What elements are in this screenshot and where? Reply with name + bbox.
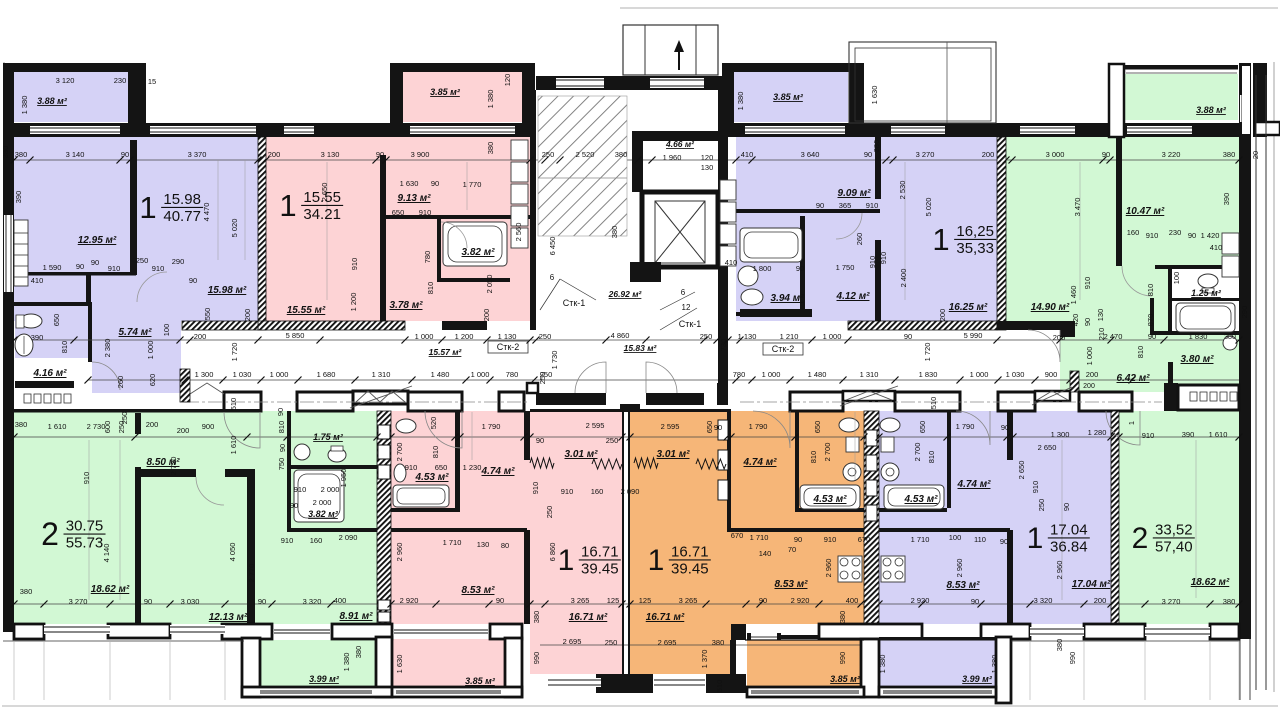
svg-text:650: 650: [918, 421, 927, 434]
svg-text:90: 90: [376, 150, 384, 159]
svg-text:1 830: 1 830: [919, 370, 938, 379]
svg-text:910: 910: [82, 472, 91, 485]
svg-text:410: 410: [31, 276, 44, 285]
svg-text:1: 1: [1127, 421, 1136, 425]
svg-text:230: 230: [1169, 228, 1182, 237]
svg-text:1 610: 1 610: [229, 436, 238, 455]
svg-text:1 000: 1 000: [270, 370, 289, 379]
svg-text:870: 870: [1146, 314, 1155, 327]
svg-text:3.85 м²: 3.85 м²: [430, 87, 461, 97]
svg-text:1 380: 1 380: [486, 90, 495, 109]
svg-text:120: 120: [503, 74, 512, 87]
svg-text:2 400: 2 400: [899, 269, 908, 288]
svg-text:910: 910: [152, 264, 165, 273]
svg-text:35,33: 35,33: [956, 240, 994, 257]
svg-text:380: 380: [15, 420, 28, 429]
svg-text:910: 910: [419, 208, 432, 217]
svg-text:3 265: 3 265: [571, 596, 590, 605]
svg-text:3.88 м²: 3.88 м²: [37, 96, 68, 106]
svg-text:250: 250: [1037, 499, 1046, 512]
svg-text:1 200: 1 200: [455, 332, 474, 341]
svg-text:9.13 м²: 9.13 м²: [398, 193, 432, 204]
svg-text:100: 100: [162, 324, 171, 337]
svg-text:1.75 м²: 1.75 м²: [313, 432, 344, 442]
svg-text:1 480: 1 480: [808, 370, 827, 379]
svg-text:15.55 м²: 15.55 м²: [287, 305, 326, 316]
svg-text:400: 400: [334, 596, 347, 605]
svg-text:12.95 м²: 12.95 м²: [78, 235, 117, 246]
svg-text:16.25 м²: 16.25 м²: [949, 302, 988, 313]
svg-text:90: 90: [904, 332, 912, 341]
svg-text:90: 90: [91, 258, 99, 267]
svg-text:600: 600: [103, 421, 112, 434]
svg-text:780: 780: [423, 251, 432, 264]
svg-text:910: 910: [561, 487, 574, 496]
svg-text:1 000: 1 000: [471, 370, 490, 379]
svg-text:12.13 м²: 12.13 м²: [209, 612, 248, 623]
svg-text:1 000: 1 000: [762, 370, 781, 379]
svg-text:40.77: 40.77: [163, 208, 201, 225]
svg-text:2 380: 2 380: [103, 339, 112, 358]
svg-text:15.83 м²: 15.83 м²: [624, 343, 658, 353]
svg-text:910: 910: [405, 463, 418, 472]
svg-text:520: 520: [429, 417, 438, 430]
svg-text:4.66 м²: 4.66 м²: [665, 139, 695, 149]
svg-text:250: 250: [136, 256, 149, 265]
svg-text:1 370: 1 370: [700, 650, 709, 669]
svg-text:10.47 м²: 10.47 м²: [1126, 206, 1165, 217]
svg-text:90: 90: [796, 264, 804, 273]
svg-text:1 710: 1 710: [750, 533, 769, 542]
svg-text:250: 250: [606, 436, 619, 445]
svg-text:90: 90: [76, 262, 84, 271]
svg-text:2 700: 2 700: [913, 443, 922, 462]
svg-text:90: 90: [971, 597, 979, 606]
svg-text:3.01 м²: 3.01 м²: [565, 449, 599, 460]
svg-text:1 790: 1 790: [749, 422, 768, 431]
svg-text:1: 1: [139, 190, 156, 225]
svg-text:16.71 м²: 16.71 м²: [646, 612, 685, 623]
svg-text:1 000: 1 000: [1085, 347, 1094, 366]
svg-text:16.71: 16.71: [671, 543, 709, 560]
svg-text:8.53 м²: 8.53 м²: [947, 580, 981, 591]
svg-text:5 020: 5 020: [230, 219, 239, 238]
svg-text:2 960: 2 960: [395, 543, 404, 562]
svg-text:260: 260: [855, 233, 864, 246]
svg-text:510: 510: [229, 398, 238, 411]
svg-text:1 380: 1 380: [878, 655, 887, 674]
svg-text:810: 810: [1146, 284, 1155, 297]
svg-text:2 650: 2 650: [1017, 461, 1026, 480]
svg-text:200: 200: [1086, 370, 1099, 379]
svg-text:380: 380: [838, 611, 847, 624]
svg-text:1 590: 1 590: [43, 263, 62, 272]
svg-text:260: 260: [116, 376, 125, 389]
svg-text:1 790: 1 790: [956, 422, 975, 431]
svg-text:510: 510: [715, 680, 724, 693]
svg-text:780: 780: [506, 370, 519, 379]
svg-text:650: 650: [52, 314, 61, 327]
svg-text:130: 130: [1096, 309, 1105, 322]
svg-text:1 030: 1 030: [233, 370, 252, 379]
svg-text:810: 810: [60, 341, 69, 354]
svg-text:90: 90: [794, 535, 802, 544]
svg-text:3.99 м²: 3.99 м²: [962, 674, 993, 684]
svg-text:4.74 м²: 4.74 м²: [957, 479, 992, 490]
svg-text:3.85 м²: 3.85 м²: [830, 674, 861, 684]
svg-text:6: 6: [550, 273, 555, 282]
svg-text:4 050: 4 050: [228, 543, 237, 562]
svg-text:1 610: 1 610: [1209, 430, 1228, 439]
svg-text:3 220: 3 220: [1162, 150, 1181, 159]
svg-text:620: 620: [148, 374, 157, 387]
svg-text:1 200: 1 200: [349, 293, 358, 312]
svg-text:2: 2: [1132, 522, 1149, 555]
svg-text:2 960: 2 960: [824, 559, 833, 578]
svg-text:910: 910: [294, 485, 307, 494]
svg-text:2 000: 2 000: [313, 498, 332, 507]
svg-text:380: 380: [1055, 639, 1064, 652]
svg-text:410: 410: [725, 258, 738, 267]
svg-text:2 595: 2 595: [661, 422, 680, 431]
svg-text:90: 90: [864, 150, 872, 159]
svg-text:90: 90: [816, 201, 824, 210]
svg-text:34.21: 34.21: [303, 206, 341, 223]
svg-text:1: 1: [279, 188, 296, 223]
svg-text:57,40: 57,40: [1155, 538, 1193, 555]
svg-text:365: 365: [839, 201, 852, 210]
svg-text:910: 910: [108, 264, 121, 273]
svg-text:100: 100: [949, 533, 962, 542]
svg-text:2 700: 2 700: [395, 443, 404, 462]
svg-text:250: 250: [700, 332, 713, 341]
svg-text:380: 380: [532, 611, 541, 624]
svg-text:1 300: 1 300: [1051, 430, 1070, 439]
svg-text:15.98: 15.98: [163, 191, 201, 208]
svg-text:200: 200: [268, 150, 281, 159]
svg-text:1: 1: [1027, 522, 1044, 555]
svg-text:380: 380: [610, 226, 619, 239]
svg-text:55.73: 55.73: [66, 535, 104, 552]
svg-text:2 960: 2 960: [955, 559, 964, 578]
svg-text:650: 650: [813, 421, 822, 434]
svg-text:3 120: 3 120: [56, 76, 75, 85]
svg-text:90: 90: [189, 276, 197, 285]
svg-text:90: 90: [276, 408, 285, 416]
svg-text:15: 15: [148, 77, 156, 86]
svg-text:90: 90: [714, 423, 722, 432]
svg-text:4.74 м²: 4.74 м²: [743, 457, 778, 468]
svg-text:1 630: 1 630: [870, 86, 879, 105]
svg-text:16.71 м²: 16.71 м²: [569, 612, 608, 623]
svg-text:6.42 м²: 6.42 м²: [1117, 373, 1151, 384]
svg-text:1 610: 1 610: [48, 422, 67, 431]
svg-text:1 000: 1 000: [823, 332, 842, 341]
svg-text:3 370: 3 370: [188, 150, 207, 159]
svg-text:230: 230: [114, 76, 127, 85]
svg-text:6 860: 6 860: [548, 543, 557, 562]
svg-text:4.53 м²: 4.53 м²: [904, 494, 939, 505]
svg-text:2 650: 2 650: [1038, 443, 1057, 452]
svg-text:Стк-1: Стк-1: [563, 298, 586, 308]
svg-text:80: 80: [501, 541, 509, 550]
svg-text:380: 380: [1223, 150, 1236, 159]
svg-text:18.62 м²: 18.62 м²: [1191, 577, 1230, 588]
svg-text:200: 200: [194, 332, 207, 341]
svg-text:650: 650: [435, 463, 448, 472]
svg-text:2 050: 2 050: [485, 275, 494, 294]
svg-text:3.82 м²: 3.82 м²: [308, 509, 339, 519]
svg-text:3.85 м²: 3.85 м²: [773, 92, 804, 102]
svg-text:1 460: 1 460: [1069, 286, 1078, 305]
svg-text:810: 810: [809, 451, 818, 464]
svg-text:2 920: 2 920: [791, 596, 810, 605]
svg-text:3 030: 3 030: [181, 597, 200, 606]
svg-text:130: 130: [477, 540, 490, 549]
svg-text:380: 380: [712, 638, 725, 647]
svg-text:16.71: 16.71: [581, 543, 619, 560]
svg-text:1 000: 1 000: [146, 341, 155, 360]
svg-text:810: 810: [431, 446, 440, 459]
svg-text:650: 650: [392, 208, 405, 217]
svg-text:250: 250: [545, 506, 554, 519]
svg-text:70: 70: [788, 545, 796, 554]
svg-text:1 380: 1 380: [990, 655, 999, 674]
svg-text:2 920: 2 920: [400, 596, 419, 605]
svg-text:1 210: 1 210: [780, 332, 799, 341]
svg-text:250: 250: [120, 412, 129, 425]
svg-text:390: 390: [1182, 430, 1195, 439]
svg-text:1 730: 1 730: [550, 351, 559, 370]
svg-text:1 480: 1 480: [431, 370, 450, 379]
svg-text:390: 390: [31, 333, 44, 342]
svg-text:3 270: 3 270: [69, 597, 88, 606]
svg-text:90: 90: [1001, 423, 1009, 432]
svg-text:2 470: 2 470: [1104, 332, 1123, 341]
svg-text:2 695: 2 695: [658, 638, 677, 647]
svg-text:390: 390: [1222, 193, 1231, 206]
svg-text:1.25 м²: 1.25 м²: [1191, 288, 1222, 298]
svg-text:Стк-2: Стк-2: [772, 344, 795, 354]
svg-text:1 130: 1 130: [498, 332, 517, 341]
svg-text:120: 120: [701, 153, 714, 162]
svg-text:16,25: 16,25: [956, 223, 994, 240]
svg-text:1 790: 1 790: [482, 422, 501, 431]
svg-text:650: 650: [705, 421, 714, 434]
svg-text:1: 1: [648, 544, 665, 577]
svg-text:1 310: 1 310: [372, 370, 391, 379]
svg-text:3 470: 3 470: [1073, 198, 1082, 217]
svg-text:90: 90: [278, 444, 287, 452]
svg-text:410: 410: [1210, 243, 1223, 252]
svg-text:990: 990: [532, 652, 541, 665]
svg-text:18.62 м²: 18.62 м²: [91, 584, 130, 595]
svg-text:810: 810: [1136, 346, 1145, 359]
svg-text:90: 90: [1000, 537, 1008, 546]
svg-text:420: 420: [1071, 314, 1080, 327]
svg-text:4.74 м²: 4.74 м²: [481, 466, 516, 477]
svg-text:3.80 м²: 3.80 м²: [1181, 354, 1215, 365]
svg-text:160: 160: [591, 487, 604, 496]
svg-text:1 710: 1 710: [911, 535, 930, 544]
svg-text:3 130: 3 130: [321, 150, 340, 159]
svg-text:810: 810: [426, 282, 435, 295]
svg-text:90: 90: [144, 597, 152, 606]
svg-text:380: 380: [872, 140, 881, 153]
svg-text:1 770: 1 770: [463, 180, 482, 189]
svg-text:2 560: 2 560: [514, 223, 523, 242]
svg-text:3 320: 3 320: [303, 597, 322, 606]
svg-text:380: 380: [486, 142, 495, 155]
svg-text:15.98 м²: 15.98 м²: [208, 285, 247, 296]
svg-text:90: 90: [258, 597, 266, 606]
svg-text:3 140: 3 140: [66, 150, 85, 159]
svg-text:15.57 м²: 15.57 м²: [429, 347, 463, 357]
svg-text:1 310: 1 310: [860, 370, 879, 379]
svg-text:1 280: 1 280: [1088, 428, 1107, 437]
svg-text:140: 140: [759, 549, 772, 558]
svg-text:3 320: 3 320: [1034, 596, 1053, 605]
svg-text:910: 910: [824, 535, 837, 544]
svg-text:2 000: 2 000: [321, 485, 340, 494]
svg-text:1 680: 1 680: [317, 370, 336, 379]
svg-text:670: 670: [731, 531, 744, 540]
svg-text:1 960: 1 960: [663, 153, 682, 162]
svg-text:380: 380: [615, 150, 628, 159]
svg-text:12: 12: [682, 303, 691, 312]
svg-text:990: 990: [838, 652, 847, 665]
svg-text:380: 380: [1224, 334, 1236, 341]
svg-text:670: 670: [858, 535, 871, 544]
svg-text:3.78 м²: 3.78 м²: [390, 300, 424, 311]
svg-text:3.82 м²: 3.82 м²: [462, 247, 496, 258]
svg-text:910: 910: [281, 536, 294, 545]
svg-text:910: 910: [868, 256, 877, 269]
svg-text:90: 90: [1148, 332, 1156, 341]
svg-text:14.90 м²: 14.90 м²: [1031, 302, 1070, 313]
svg-text:200: 200: [1083, 383, 1095, 390]
svg-text:1 710: 1 710: [443, 538, 462, 547]
svg-text:910: 910: [1083, 277, 1092, 290]
svg-text:3.99 м²: 3.99 м²: [309, 674, 340, 684]
svg-text:2 530: 2 530: [898, 181, 907, 200]
svg-text:4 140: 4 140: [102, 544, 111, 563]
svg-text:290: 290: [1240, 306, 1249, 319]
svg-text:1 950: 1 950: [339, 469, 348, 488]
svg-text:3 265: 3 265: [679, 596, 698, 605]
svg-text:5.74 м²: 5.74 м²: [119, 327, 153, 338]
svg-text:1 230: 1 230: [463, 463, 482, 472]
svg-text:1 380: 1 380: [20, 96, 29, 115]
svg-text:910: 910: [1142, 431, 1155, 440]
svg-text:3.88 м²: 3.88 м²: [1196, 105, 1227, 115]
svg-text:990: 990: [1068, 652, 1077, 665]
svg-text:4.53 м²: 4.53 м²: [813, 494, 848, 505]
svg-text:3.94 м²: 3.94 м²: [771, 293, 805, 304]
svg-text:200: 200: [982, 150, 995, 159]
svg-text:750: 750: [277, 458, 286, 471]
svg-text:2: 2: [41, 516, 59, 552]
svg-text:1 720: 1 720: [923, 343, 932, 362]
svg-text:2 520: 2 520: [576, 150, 595, 159]
svg-text:3.85 м²: 3.85 м²: [465, 676, 496, 686]
svg-text:3 640: 3 640: [801, 150, 820, 159]
svg-text:910: 910: [1146, 231, 1159, 240]
svg-text:200: 200: [177, 426, 190, 435]
svg-text:5 020: 5 020: [924, 198, 933, 217]
svg-text:8.91 м²: 8.91 м²: [340, 611, 374, 622]
svg-text:1 030: 1 030: [1006, 370, 1025, 379]
svg-text:90: 90: [1083, 318, 1092, 326]
svg-text:125: 125: [639, 596, 652, 605]
svg-text:1: 1: [932, 222, 949, 257]
svg-text:3.01 м²: 3.01 м²: [657, 449, 691, 460]
svg-text:2 960: 2 960: [1055, 561, 1064, 580]
svg-text:810: 810: [277, 421, 286, 434]
svg-text:1 750: 1 750: [836, 263, 855, 272]
svg-text:8.53 м²: 8.53 м²: [775, 579, 809, 590]
svg-text:8.50 м²: 8.50 м²: [147, 457, 181, 468]
svg-text:910: 910: [866, 201, 879, 210]
svg-text:90: 90: [496, 596, 504, 605]
svg-text:1 720: 1 720: [230, 343, 239, 362]
svg-text:1 000: 1 000: [415, 332, 434, 341]
svg-text:1 380: 1 380: [342, 653, 351, 672]
svg-text:4.12 м²: 4.12 м²: [836, 291, 871, 302]
svg-text:380: 380: [1223, 597, 1236, 606]
svg-text:810: 810: [927, 451, 936, 464]
svg-text:900: 900: [202, 422, 215, 431]
svg-text:2 700: 2 700: [823, 443, 832, 462]
svg-text:410: 410: [741, 150, 754, 159]
svg-text:390: 390: [14, 191, 23, 204]
svg-text:9.09 м²: 9.09 м²: [838, 188, 872, 199]
svg-text:4 470: 4 470: [202, 203, 211, 222]
svg-text:90: 90: [536, 436, 544, 445]
svg-text:1 380: 1 380: [736, 92, 745, 111]
svg-text:2 090: 2 090: [339, 533, 358, 542]
svg-text:250: 250: [605, 638, 618, 647]
svg-text:4.16 м²: 4.16 м²: [33, 368, 68, 379]
svg-text:200: 200: [1094, 596, 1107, 605]
svg-text:8.53 м²: 8.53 м²: [462, 585, 496, 596]
svg-text:250: 250: [539, 332, 552, 341]
svg-text:1 830: 1 830: [1189, 332, 1208, 341]
svg-text:3 900: 3 900: [411, 150, 430, 159]
svg-text:2 090: 2 090: [621, 487, 640, 496]
svg-text:1 630: 1 630: [395, 655, 404, 674]
svg-text:290: 290: [172, 257, 185, 266]
svg-text:900: 900: [1045, 370, 1058, 379]
svg-text:1 800: 1 800: [753, 264, 772, 273]
svg-text:910: 910: [531, 482, 540, 495]
svg-text:33,52: 33,52: [1155, 521, 1193, 538]
svg-text:200: 200: [243, 309, 252, 322]
svg-text:6 450: 6 450: [548, 237, 557, 256]
svg-text:1 300: 1 300: [195, 370, 214, 379]
svg-text:17.04: 17.04: [1050, 521, 1088, 538]
svg-text:400: 400: [846, 596, 859, 605]
svg-text:1 000: 1 000: [970, 370, 989, 379]
svg-text:90: 90: [431, 179, 439, 188]
svg-text:4.53 м²: 4.53 м²: [415, 472, 450, 483]
svg-text:39.45: 39.45: [671, 560, 709, 577]
svg-text:90: 90: [290, 501, 298, 510]
svg-text:6: 6: [681, 288, 686, 297]
svg-text:17.04 м²: 17.04 м²: [1072, 579, 1111, 590]
svg-text:30.75: 30.75: [66, 517, 104, 534]
svg-text:910: 910: [879, 252, 888, 265]
